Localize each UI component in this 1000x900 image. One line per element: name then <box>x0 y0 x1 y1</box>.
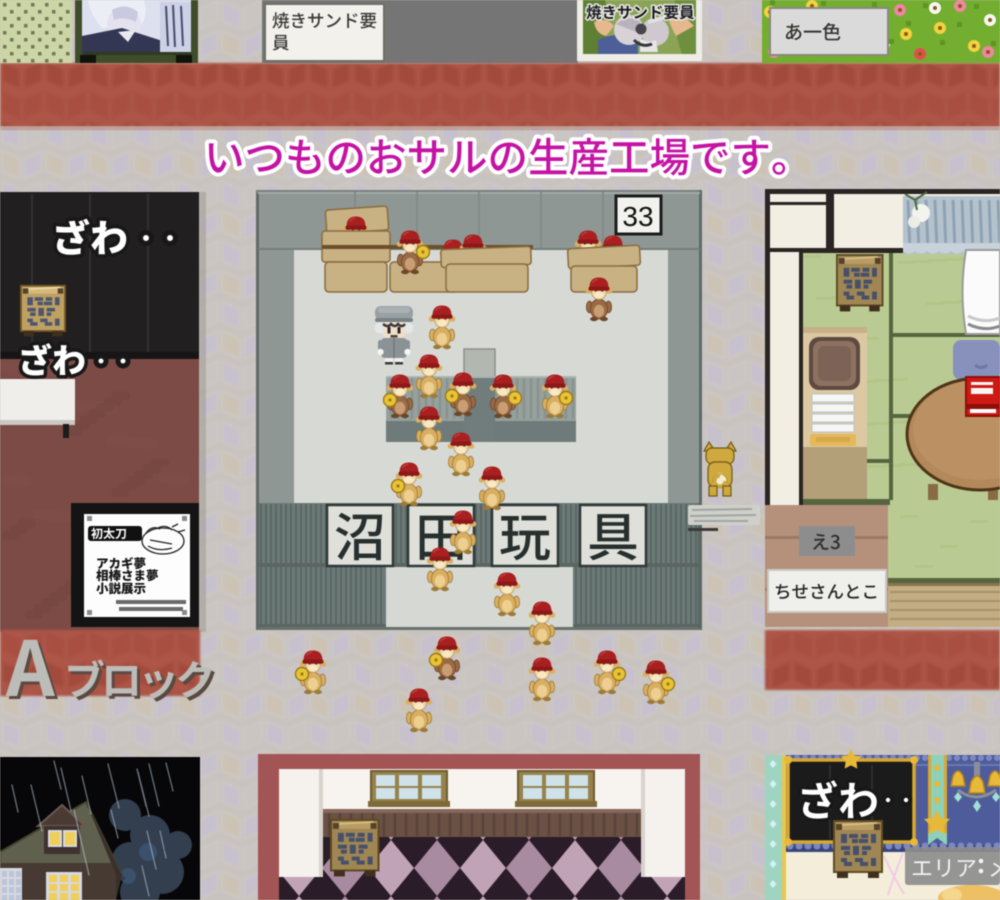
svg-text:33: 33 <box>622 201 653 232</box>
